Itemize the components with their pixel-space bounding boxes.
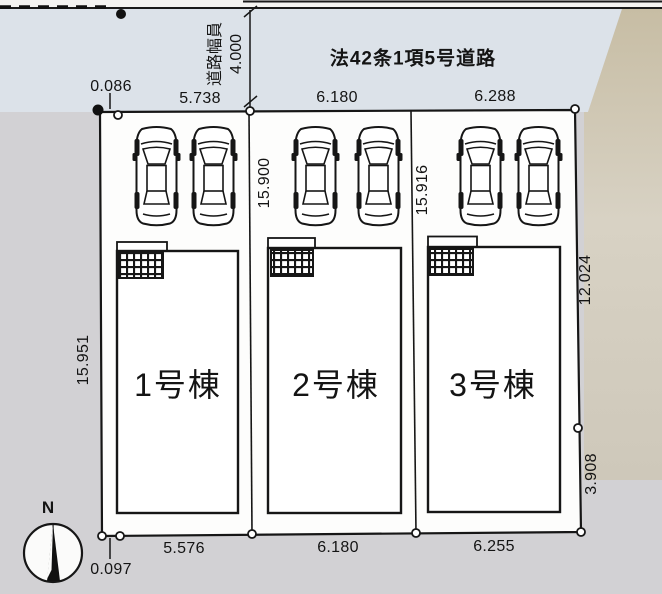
boundary-point: [574, 424, 582, 432]
boundary-point: [116, 532, 124, 540]
car-icon: [133, 127, 181, 225]
road-width-block: 道路幅員 4.000: [206, 22, 248, 86]
site-plan-canvas: 法42条1項5号道路 道路幅員 4.000 0.086 5.738 6.180 …: [0, 0, 662, 594]
dim-frontage-top-lot2: 6.180: [316, 89, 358, 107]
road-width-value: 4.000: [227, 22, 248, 86]
lot-2-label: 2号棟: [292, 360, 380, 406]
dim-frontage-bottom-lot3: 6.255: [473, 538, 515, 556]
dim-depth-left: 15.951: [75, 335, 93, 386]
car-icon: [457, 127, 505, 225]
boundary-point: [98, 532, 106, 540]
balcony-hatch-3: [430, 249, 473, 275]
boundary-point: [246, 107, 254, 115]
dim-offset-top: 0.086: [90, 78, 132, 96]
balcony-hatch-2: [271, 250, 313, 276]
dim-frontage-bottom-lot1: 5.576: [163, 540, 205, 558]
road-area: [0, 9, 622, 112]
boundary-point: [248, 530, 256, 538]
compass-north-label: N: [42, 498, 54, 518]
dim-offset-bottom: 0.097: [90, 561, 132, 579]
porch-3: [428, 237, 477, 248]
compass-icon: [24, 524, 82, 582]
boundary-point: [114, 111, 122, 119]
boundary-point: [577, 528, 585, 536]
dim-depth-right-lower: 3.908: [583, 453, 601, 495]
dim-frontage-bottom-lot2: 6.180: [317, 539, 359, 557]
car-icon: [515, 127, 563, 225]
dim-frontage-top-lot3: 6.288: [474, 88, 516, 106]
porch-2: [268, 238, 315, 248]
boundary-point: [412, 529, 420, 537]
boundary-point: [571, 105, 579, 113]
car-icon: [292, 127, 340, 225]
dim-depth-lot2-3: 15.916: [414, 165, 432, 216]
lot-1-label: 1号棟: [134, 360, 222, 406]
road-designation-label: 法42条1項5号道路: [330, 44, 496, 71]
car-icon: [355, 127, 403, 225]
boundary-point-filled: [93, 105, 104, 116]
dim-depth-right-upper: 12.024: [577, 255, 595, 306]
car-icon: [190, 127, 238, 225]
road-width-label: 道路幅員: [206, 22, 227, 86]
dim-depth-lot1-2: 15.900: [256, 158, 274, 209]
balcony-hatch-1: [119, 253, 163, 278]
utility-dot-icon: [116, 9, 126, 19]
dim-frontage-top-lot1: 5.738: [179, 90, 221, 108]
lot-3-label: 3号棟: [449, 360, 537, 406]
